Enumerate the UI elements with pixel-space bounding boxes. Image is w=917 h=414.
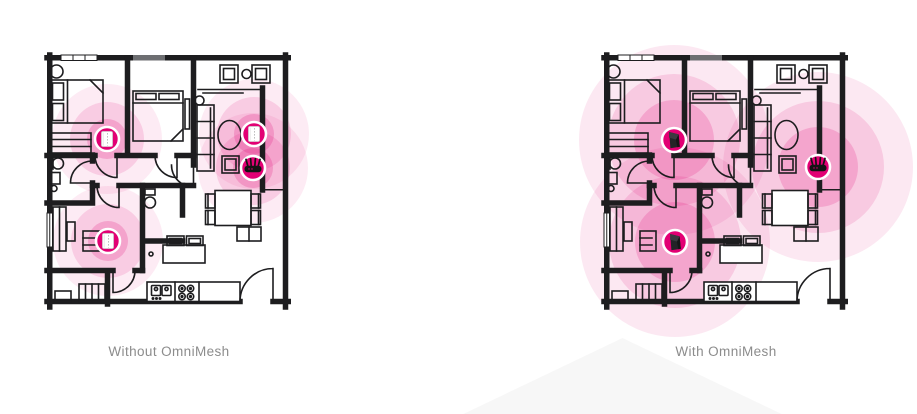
panel-with-omnimesh: With OmniMesh <box>604 55 848 307</box>
floorplan-without-omnimesh <box>47 55 291 307</box>
wifi-extender-bedroom1-icon <box>95 127 119 151</box>
wifi-router-living-room-icon <box>806 155 830 179</box>
wifi-extender-living-room-icon <box>242 122 266 146</box>
mesh-node-bedroom3-icon <box>663 230 687 254</box>
caption-with-omnimesh: With OmniMesh <box>604 344 848 359</box>
mesh-node-bedroom1-icon <box>662 128 686 152</box>
wifi-router-living-room-icon <box>241 156 265 180</box>
floorplan-with-omnimesh <box>604 55 848 307</box>
panel-without-omnimesh: Without OmniMesh <box>47 55 291 307</box>
page-canvas: Without OmniMesh With OmniMesh <box>0 0 917 414</box>
caption-without-omnimesh: Without OmniMesh <box>47 344 291 359</box>
wifi-extender-bedroom3-icon <box>96 229 120 253</box>
